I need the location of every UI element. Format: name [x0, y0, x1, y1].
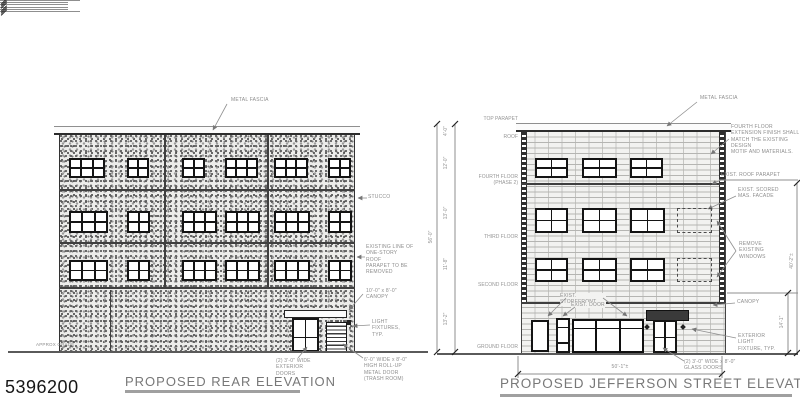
- level-label: ROOF: [458, 134, 518, 140]
- window: [69, 260, 108, 281]
- right-overall-dim: 40'-2"±: [789, 245, 795, 277]
- callout-approx-grade: APPROX GRADE: [36, 342, 78, 348]
- callout-remove-windows: REMOVE EXISTING WINDOWS: [739, 241, 771, 260]
- window-to-remove: [677, 258, 712, 282]
- window: [328, 211, 352, 233]
- window: [127, 158, 149, 178]
- glass-entry-doors: [653, 320, 677, 353]
- window: [328, 260, 352, 281]
- architectural-drawing-sheet: METAL FASCIA STUCCO EXISTING LINE OF ONE…: [0, 0, 800, 403]
- grade-line: [8, 351, 428, 353]
- callout-rollup-door: 6'-0" WIDE x 8'-0" HIGH ROLL-UP METAL DO…: [364, 357, 410, 382]
- scored-edge-column: [719, 132, 725, 303]
- window: [630, 158, 663, 178]
- exist-entry-door: [556, 318, 570, 353]
- window: [274, 158, 308, 178]
- canopy-line: [521, 302, 726, 304]
- callout-existing-parapet: EXISTING LINE OF ONE-STORY ROOF PARAPET …: [366, 244, 414, 275]
- downspout-line: [110, 290, 111, 352]
- window: [630, 208, 665, 233]
- storefront-window: [531, 320, 549, 352]
- story-height-dim: 13'-2": [443, 304, 449, 334]
- window: [225, 260, 260, 281]
- floor-line: [59, 287, 355, 289]
- floor-line: [59, 242, 355, 244]
- level-label: THIRD FLOOR: [458, 234, 518, 240]
- grade-line: [437, 353, 798, 355]
- level-label: SECOND FLOOR: [458, 282, 518, 288]
- window: [535, 158, 568, 178]
- window: [535, 258, 568, 282]
- window: [225, 211, 260, 233]
- window: [182, 158, 205, 178]
- level-line: [0, 11, 80, 12]
- level-label: GROUND FLOOR: [458, 344, 518, 350]
- level-line: [0, 4, 68, 5]
- window: [274, 260, 310, 281]
- story-height-dim: 4'-0": [443, 116, 449, 146]
- window: [182, 211, 217, 233]
- rear-metal-fascia: [54, 126, 360, 135]
- callout-fourth-floor-note: FOURTH FLOOR EXTENSION FINISH SHALL MATC…: [731, 124, 800, 155]
- window: [582, 258, 617, 282]
- street-title-underline: [500, 394, 792, 397]
- story-height-dim: 13'-0": [443, 198, 449, 228]
- window: [69, 158, 105, 178]
- street-metal-fascia: [516, 123, 731, 132]
- sheet-number: 5396200: [5, 377, 79, 398]
- bay-divider: [267, 135, 269, 289]
- level-line: [0, 7, 68, 8]
- rollup-metal-door: [326, 322, 347, 352]
- callout-canopy: 10'-0" x 8'-0" CANOPY: [366, 288, 408, 301]
- callout-exterior-light: EXTERIOR LIGHT FIXTURE, TYP.: [738, 333, 780, 352]
- window: [535, 208, 568, 233]
- street-elevation-title: PROPOSED JEFFERSON STREET ELEVATION: [500, 376, 792, 391]
- callout-exist-scored: EXIST. SCORED MAS. FACADE: [738, 187, 780, 200]
- callout-exist-roof-parapet: EXIST. ROOF PARAPET: [721, 172, 800, 178]
- level-line: [0, 9, 68, 10]
- window: [630, 258, 665, 282]
- callout-stucco: STUCCO: [368, 194, 400, 200]
- floor-line: [59, 189, 355, 191]
- level-label: TOP PARAPET: [458, 116, 518, 122]
- story-height-dim: 12'-0": [443, 148, 449, 178]
- width-dim: 50'-1"±: [518, 364, 722, 370]
- callout-canopy: CANOPY: [737, 299, 769, 305]
- level-line: [0, 2, 68, 3]
- window: [582, 208, 617, 233]
- window: [328, 158, 351, 178]
- callout-metal-fascia: METAL FASCIA: [700, 95, 752, 101]
- window: [127, 211, 150, 233]
- exist-roof-parapet-line: [521, 183, 726, 185]
- window: [127, 260, 150, 281]
- window: [225, 158, 258, 178]
- window: [274, 211, 310, 233]
- rear-title-underline: [125, 390, 300, 393]
- window: [582, 158, 617, 178]
- window: [182, 260, 217, 281]
- bay-divider: [164, 135, 166, 289]
- exist-aluminum-storefront: [572, 319, 644, 353]
- callout-metal-fascia: METAL FASCIA: [231, 97, 283, 103]
- storefront-height-dim: 14'-1": [779, 307, 785, 337]
- level-label: FOURTH FLOOR (PHASE 2): [458, 174, 518, 186]
- scored-edge-column: [521, 132, 527, 303]
- callout-light-fixtures: LIGHT FIXTURES, TYP.: [372, 319, 408, 338]
- rear-elevation-title: PROPOSED REAR ELEVATION: [125, 374, 300, 389]
- level-line: [0, 0, 80, 1]
- light-fixture: [347, 320, 351, 325]
- story-height-dim: 11'-8": [443, 249, 449, 279]
- overall-height-dim: 56'-0": [428, 222, 434, 252]
- window-to-remove: [677, 208, 712, 233]
- rear-double-door: [292, 318, 319, 352]
- callout-exist-door: EXIST. DOOR: [571, 302, 605, 308]
- rear-entry-canopy: [284, 310, 347, 318]
- window: [69, 211, 108, 233]
